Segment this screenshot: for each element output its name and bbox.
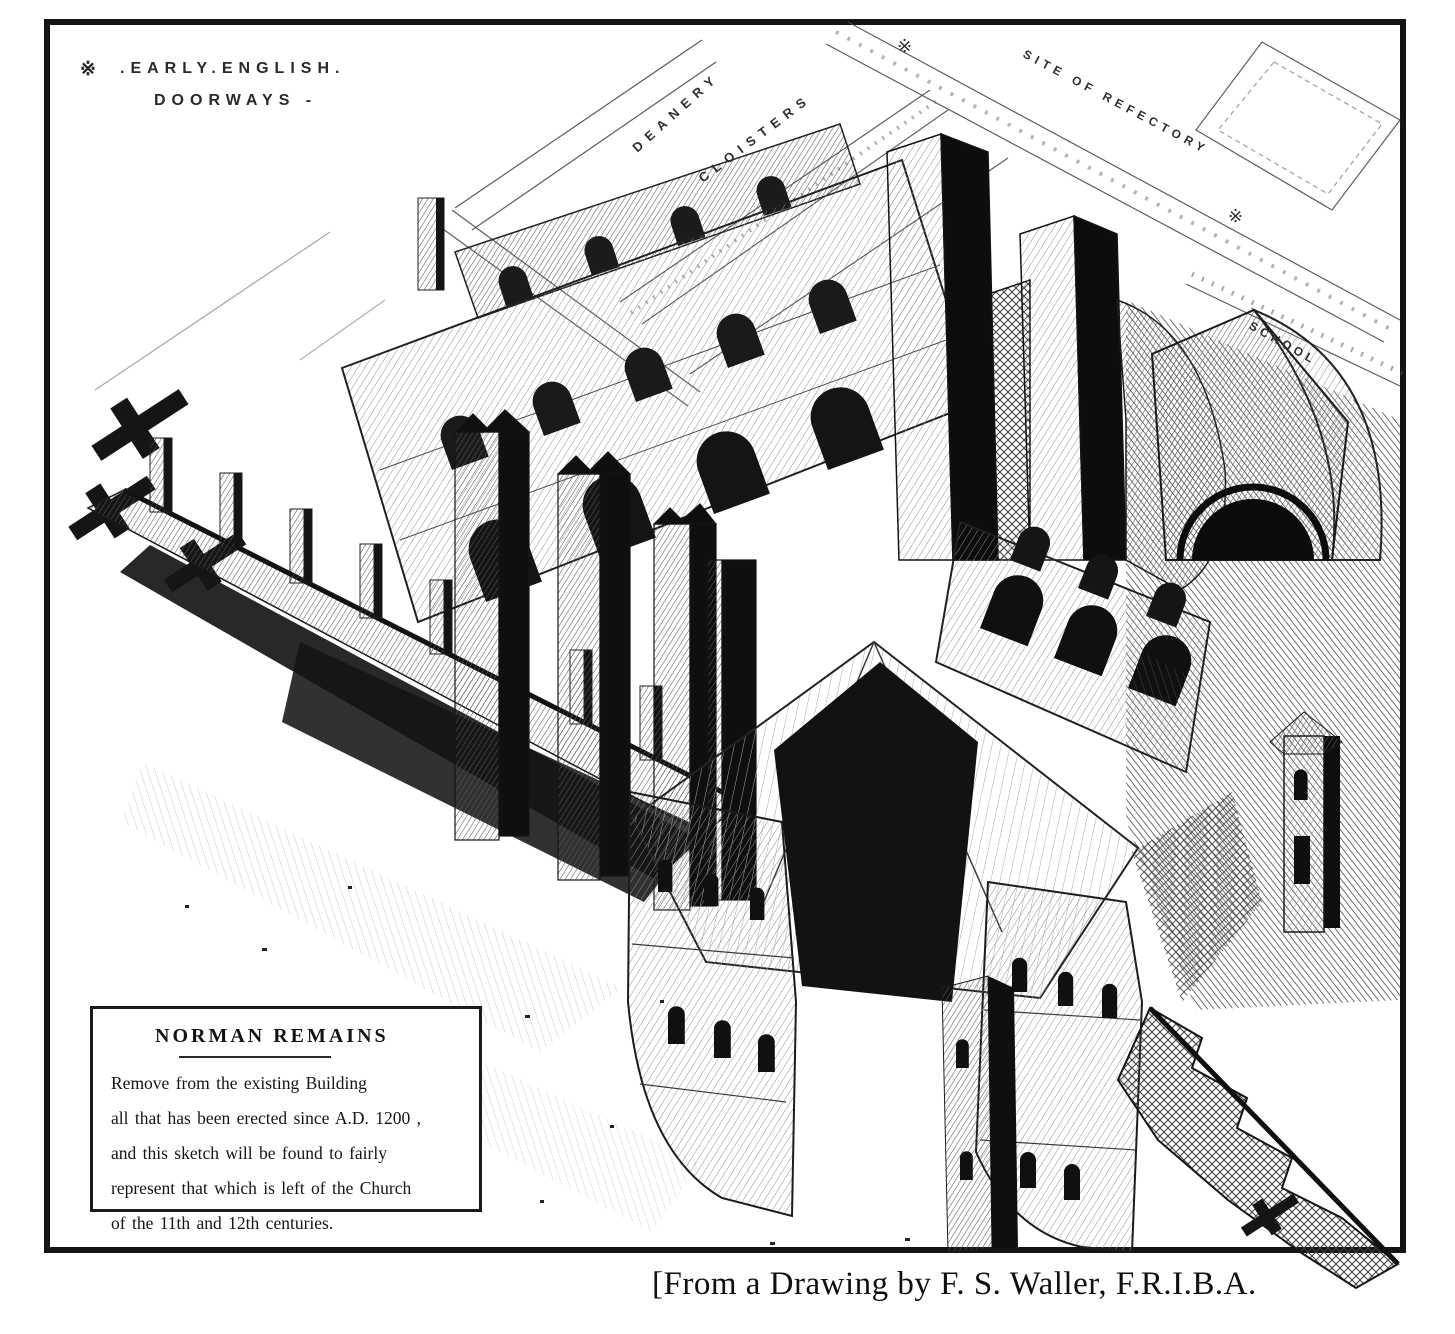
school-arch xyxy=(1152,310,1382,560)
legend-title: NORMAN REMAINS xyxy=(155,1025,461,1048)
engraving-page: ※ ※ xyxy=(0,0,1455,1334)
doorway-marker-icon: ※ xyxy=(897,36,912,56)
legend-line: represent that which is left of the Chur… xyxy=(111,1171,461,1206)
doorways-note-line2: DOORWAYS - xyxy=(154,92,317,110)
doorways-note-line1: .EARLY.ENGLISH. xyxy=(120,60,345,78)
legend-rule xyxy=(179,1056,331,1058)
legend-box: NORMAN REMAINS Remove from the existing … xyxy=(90,1006,482,1212)
legend-line: and this sketch will be found to fairly xyxy=(111,1136,461,1171)
doorway-marker-icon: ※ xyxy=(1228,206,1243,226)
stepped-ruin xyxy=(1118,1008,1398,1288)
crossing-pier-slabs xyxy=(887,134,1126,560)
drawing-caption: [From a Drawing by F. S. Waller, F.R.I.B… xyxy=(652,1266,1257,1303)
reference-mark-icon: ※ xyxy=(80,58,96,81)
legend-line: all that has been erected since A.D. 120… xyxy=(111,1101,461,1136)
legend-line: of the 11th and 12th centuries. xyxy=(111,1206,461,1241)
legend-line: Remove from the existing Building xyxy=(111,1066,461,1101)
